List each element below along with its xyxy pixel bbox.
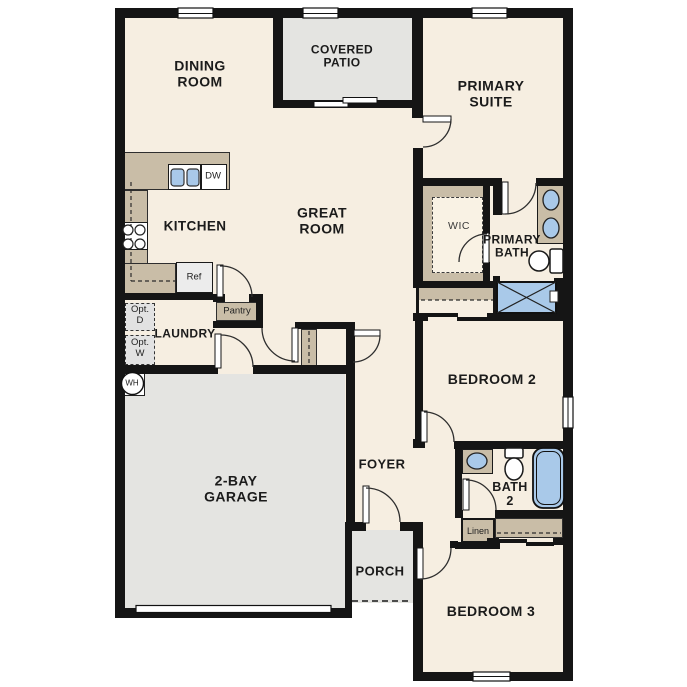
label-primary-suite: PRIMARYSUITE	[458, 78, 525, 109]
label-dining-room: DININGROOM	[174, 58, 225, 89]
wall	[536, 178, 563, 186]
label-porch: PORCH	[356, 565, 405, 580]
wall	[115, 365, 218, 374]
wall	[483, 186, 490, 234]
wall	[553, 538, 563, 545]
label-bath2: BATH2	[492, 480, 527, 508]
label-dw: DW	[205, 172, 221, 183]
wall	[416, 288, 419, 315]
wall	[273, 8, 283, 108]
label-ref: Ref	[187, 273, 202, 284]
wall	[115, 608, 352, 618]
wall	[454, 441, 563, 449]
wall	[415, 321, 423, 441]
wall	[115, 293, 213, 300]
label-bedroom2: BEDROOM 2	[448, 372, 536, 388]
wall	[115, 8, 573, 18]
label-bedroom3: BEDROOM 3	[447, 604, 535, 620]
label-pantry: Pantry	[223, 307, 250, 318]
wall	[413, 148, 423, 288]
label-covered-patio: COVEREDPATIO	[311, 44, 373, 71]
wic-floor	[432, 197, 483, 273]
label-primary-bath: PRIMARYBATH	[483, 234, 541, 261]
sink-cabinet	[168, 164, 201, 190]
label-opt-washer: Opt.W	[131, 338, 149, 360]
wall	[413, 439, 425, 448]
hall-closet	[301, 329, 317, 368]
wall	[554, 278, 564, 318]
bedroom3-closet	[495, 518, 563, 538]
wall	[213, 294, 225, 302]
kitchen-counter-bottom	[124, 263, 176, 295]
wall	[295, 322, 355, 329]
wall	[455, 510, 463, 518]
wall	[493, 276, 500, 321]
wall	[493, 178, 502, 215]
label-foyer: FOYER	[359, 458, 406, 473]
wall	[115, 8, 125, 618]
wall	[256, 294, 263, 328]
wall	[413, 281, 497, 288]
wall	[253, 365, 352, 374]
wall	[345, 530, 352, 611]
wall	[455, 441, 462, 518]
wall	[412, 8, 423, 118]
label-kitchen: KITCHEN	[164, 218, 227, 233]
wall	[417, 178, 493, 186]
floor-plan: DININGROOM COVEREDPATIO PRIMARYSUITE GRE…	[0, 0, 687, 687]
bath2-vanity	[462, 449, 493, 474]
wall	[415, 672, 573, 681]
primary-vanity	[537, 184, 564, 244]
wall	[346, 322, 355, 531]
wall	[563, 8, 573, 681]
wall	[450, 541, 458, 548]
wall	[273, 100, 420, 108]
bedroom2-closet	[419, 288, 495, 300]
wall	[487, 538, 499, 545]
label-wic: WIC	[448, 221, 470, 233]
label-opt-dryer: Opt.D	[131, 305, 149, 327]
label-great-room: GREATROOM	[297, 205, 347, 236]
wall	[495, 510, 563, 518]
wall	[413, 522, 423, 681]
label-laundry: LAUNDRY	[154, 327, 215, 340]
wall	[413, 313, 428, 321]
label-water-heater: WH	[125, 378, 138, 387]
label-garage: 2-BAYGARAGE	[204, 473, 268, 504]
label-linen: Linen	[467, 526, 489, 536]
